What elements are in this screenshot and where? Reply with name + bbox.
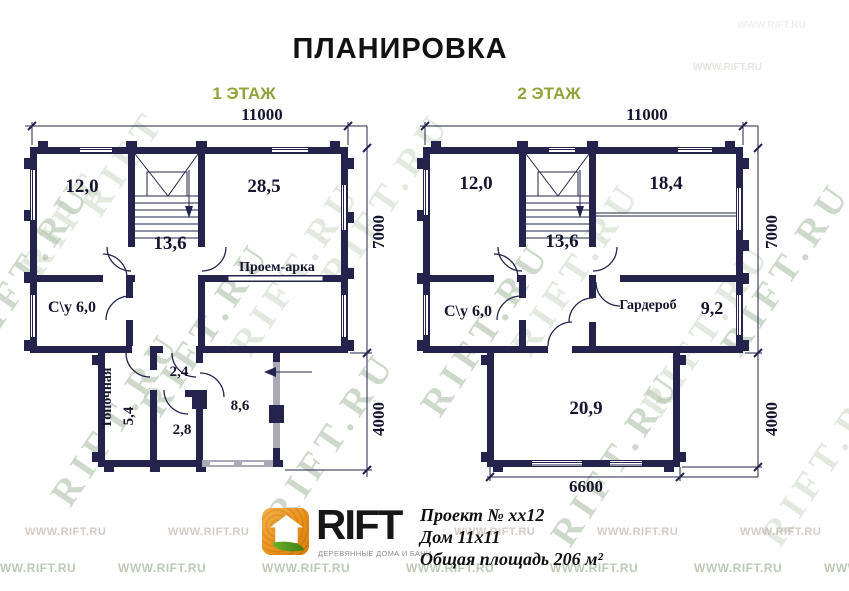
- floor2-dim-width: 11000: [626, 105, 668, 124]
- floor1-dim-width: 11000: [241, 105, 283, 124]
- project-total-area: Общая площадь 206 м²: [420, 548, 603, 570]
- rift-logo-icon: [262, 508, 309, 555]
- room-label: С\у 6,0: [444, 303, 492, 320]
- project-info: Проект № хх12 Дом 11х11 Общая площадь 20…: [420, 504, 603, 570]
- room-label: 13,6: [153, 233, 186, 254]
- room-label: 2,4: [170, 364, 189, 380]
- floorplans-drawing: 11000 7000 4000 12,0 28,5 13,6 С\у 6,0 П…: [0, 0, 849, 591]
- floor1-dim-annex: 4000: [369, 402, 388, 436]
- room-label: 2,8: [173, 422, 192, 438]
- floor2-dim-annex-height: 4000: [762, 402, 781, 436]
- floor2-railing: [596, 213, 736, 216]
- room-label: С\у 6,0: [48, 299, 96, 316]
- room-label: 5,4: [121, 406, 137, 425]
- floor1-dim-height: 7000: [369, 215, 388, 249]
- room-label: Гардероб: [619, 298, 676, 313]
- stairs-down-arrow: [185, 206, 193, 218]
- floor1-dimensions: 11000 7000 4000: [25, 105, 388, 477]
- house-icon: [270, 515, 303, 543]
- room-label: 20,9: [569, 398, 602, 419]
- stairs-down-arrow: [576, 206, 584, 218]
- room-label: 13,6: [545, 231, 578, 252]
- floor2-label: 2 ЭТАЖ: [517, 84, 580, 104]
- floorplan-page: RIFT.RU RIFT RIFT.RU RIFT RIFT.RU RIFT.R…: [0, 0, 849, 591]
- floor2-dimensions: 11000 7000 4000 6600: [420, 105, 781, 496]
- floor1-entrance-arrow: [264, 367, 312, 377]
- project-number: Проект № хх12: [420, 504, 603, 526]
- floor1-label: 1 ЭТАЖ: [212, 84, 275, 104]
- rift-brand-name: RIFT: [316, 504, 401, 546]
- floor1-doors: [103, 247, 226, 414]
- room-label: 18,4: [649, 173, 683, 194]
- floor1-plan: 11000 7000 4000 12,0 28,5 13,6 С\у 6,0 П…: [24, 105, 388, 477]
- floor2-dim-annex-width: 6600: [569, 477, 603, 496]
- room-label: 12,0: [65, 176, 98, 197]
- room-label: Проем-арка: [239, 260, 315, 275]
- floor2-doors: [494, 247, 620, 346]
- floor2-dim-height: 7000: [762, 215, 781, 249]
- floor2-stairs: [526, 154, 589, 238]
- room-label: 12,0: [459, 173, 492, 194]
- page-title: ПЛАНИРОВКА: [292, 33, 507, 66]
- room-label: 9,2: [701, 298, 724, 318]
- floor2-plan: 11000 7000 4000 6600 12,0 18,4 13,6 С\у …: [417, 105, 781, 496]
- room-label: 8,6: [231, 398, 250, 414]
- floor1-stairs: [135, 154, 198, 238]
- room-label: 28,5: [247, 176, 280, 197]
- rift-tagline: ДЕРЕВЯННЫЕ ДОМА И БАНИ: [318, 549, 432, 558]
- project-house-size: Дом 11х11: [420, 526, 603, 548]
- room-label: Топочная: [100, 367, 115, 428]
